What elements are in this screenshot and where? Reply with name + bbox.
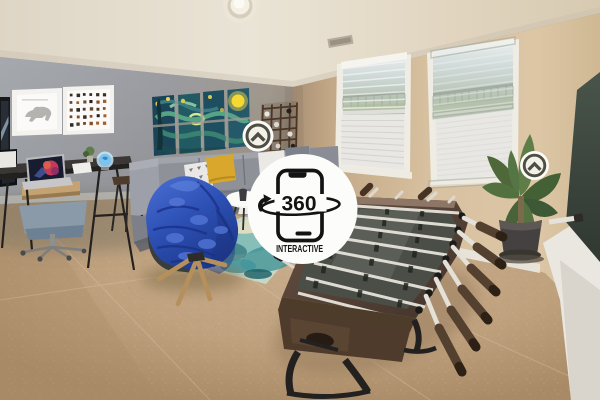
svg-text:360: 360	[282, 193, 317, 216]
svg-text:INTERACTIVE: INTERACTIVE	[276, 244, 323, 255]
